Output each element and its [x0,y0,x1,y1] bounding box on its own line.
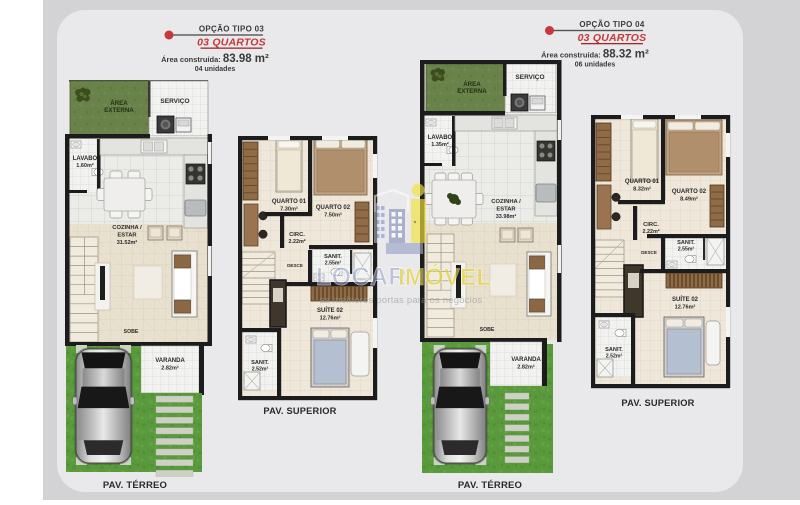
svg-text:03 QUARTOS: 03 QUARTOS [578,32,647,44]
svg-text:VARANDA: VARANDA [155,358,185,364]
svg-text:2.82m²: 2.82m² [161,365,179,372]
svg-text:12.76m²: 12.76m² [675,304,696,311]
svg-text:ESTAR: ESTAR [496,207,516,213]
svg-text:ÁREA: ÁREA [463,81,481,88]
svg-text:8.49m²: 8.49m² [680,196,698,203]
svg-text:2.52m²: 2.52m² [252,367,269,373]
svg-text:03 QUARTOS: 03 QUARTOS [197,37,266,49]
svg-text:VARANDA: VARANDA [511,357,541,363]
svg-text:PAV. SUPERIOR: PAV. SUPERIOR [621,398,694,408]
svg-text:PAV. SUPERIOR: PAV. SUPERIOR [263,406,336,416]
svg-text:33.98m²: 33.98m² [496,213,517,220]
svg-text:SANIT.: SANIT. [251,360,269,366]
svg-text:SOBE: SOBE [480,327,495,333]
svg-text:SOBE: SOBE [124,329,139,335]
svg-text:8.32m²: 8.32m² [633,186,651,193]
svg-text:SANIT.: SANIT. [677,240,695,246]
svg-text:COZINHA /: COZINHA / [491,199,521,205]
svg-text:31.52m²: 31.52m² [117,239,138,246]
svg-text:SANIT.: SANIT. [324,254,342,260]
svg-text:QUARTO 02: QUARTO 02 [316,205,351,211]
svg-text:Área construída: 83.98 m²: Área construída: 83.98 m² [161,53,269,65]
svg-text:EXTERNA: EXTERNA [104,107,134,114]
svg-text:QUARTO 02: QUARTO 02 [672,189,707,195]
svg-text:SERVIÇO: SERVIÇO [160,98,189,105]
svg-text:1.35m²: 1.35m² [431,141,449,148]
svg-text:ÁREA: ÁREA [110,100,128,107]
svg-text:SANIT.: SANIT. [605,347,623,353]
svg-text:LOCAR: LOCAR [316,263,407,291]
svg-text:LAVABO: LAVABO [73,156,98,162]
svg-text:SERVIÇO: SERVIÇO [515,74,544,81]
svg-text:as melhores portas para os neg: as melhores portas para os negócios [320,295,483,306]
svg-text:EXTERNA: EXTERNA [457,88,487,95]
svg-text:2.82m²: 2.82m² [517,364,535,371]
svg-text:7.50m²: 7.50m² [324,212,342,219]
svg-text:2.22m²: 2.22m² [288,239,305,245]
svg-text:PAV. TÉRREO: PAV. TÉRREO [458,480,522,491]
svg-text:SUÍTE 02: SUÍTE 02 [317,306,344,314]
svg-text:2.52m²: 2.52m² [606,354,623,360]
svg-text:COZINHA /: COZINHA / [112,225,142,231]
svg-text:QUARTO 01: QUARTO 01 [272,199,307,205]
svg-text:SUÍTE 02: SUÍTE 02 [672,295,699,303]
svg-text:OPÇÃO TIPO 04: OPÇÃO TIPO 04 [579,20,644,29]
svg-text:CIRC.: CIRC. [643,222,659,228]
svg-text:1.60m²: 1.60m² [76,162,94,169]
svg-text:2.55m²: 2.55m² [678,247,695,253]
svg-text:CIRC.: CIRC. [289,232,305,238]
svg-text:IMÓVEL: IMÓVEL [398,263,491,291]
svg-text:06 unidades: 06 unidades [575,62,616,69]
svg-text:ESTAR: ESTAR [117,233,137,239]
svg-text:Área construída: 88.32 m²: Área construída: 88.32 m² [541,49,649,61]
svg-text:OPÇÃO TIPO 03: OPÇÃO TIPO 03 [199,25,264,34]
svg-text:7.30m²: 7.30m² [280,206,298,213]
svg-text:12.76m²: 12.76m² [320,315,341,322]
svg-text:QUARTO 01: QUARTO 01 [625,179,660,185]
svg-text:DESCE: DESCE [287,263,303,268]
svg-text:LAVABO: LAVABO [428,135,453,141]
svg-text:DESCE: DESCE [641,250,657,255]
svg-text:04 unidades: 04 unidades [195,66,236,73]
svg-text:PAV. TÉRREO: PAV. TÉRREO [103,480,167,491]
